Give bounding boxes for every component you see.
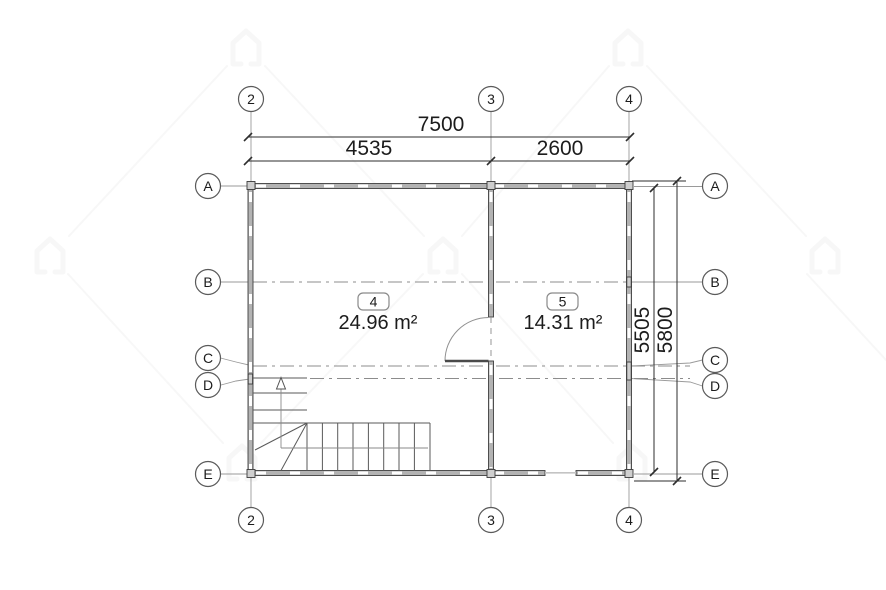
grid-label: 2 bbox=[247, 91, 255, 107]
grid-row-c-leader-right bbox=[631, 360, 703, 366]
grid-bubble-left-d: D bbox=[196, 373, 221, 398]
grid-bubble-right-b: B bbox=[703, 270, 728, 295]
grid-label: C bbox=[710, 352, 720, 368]
post-a2 bbox=[247, 182, 255, 190]
stair-direction-arrow-icon bbox=[277, 378, 286, 390]
house-logo-icon bbox=[233, 31, 259, 64]
room-5-label: 5 14.31 m² bbox=[524, 293, 603, 334]
grid-bubble-bottom-2: 2 bbox=[239, 508, 264, 533]
post-e4 bbox=[625, 470, 633, 478]
post-e3 bbox=[487, 470, 495, 478]
grid-label: 3 bbox=[487, 91, 495, 107]
dim-height-total-text: 5800 bbox=[654, 307, 677, 354]
grid-bubble-bottom-3: 3 bbox=[479, 508, 504, 533]
door-swing-arc bbox=[445, 318, 489, 362]
watermark-diagonal-lines bbox=[68, 66, 886, 443]
grid-row-d-leader-right bbox=[631, 379, 703, 387]
grid-label: C bbox=[203, 350, 213, 366]
house-logo-icon bbox=[812, 239, 838, 272]
grid-bubble-top-3: 3 bbox=[479, 87, 504, 112]
house-logo-icon bbox=[430, 239, 456, 272]
grid-label: 4 bbox=[625, 512, 633, 528]
grid-label: B bbox=[203, 274, 212, 290]
grid-label: A bbox=[710, 178, 720, 194]
watermark-layer bbox=[37, 31, 886, 479]
block-cd4 bbox=[627, 362, 631, 380]
grid-label: 3 bbox=[487, 512, 495, 528]
grid-bubble-right-e: E bbox=[703, 462, 728, 487]
room-area: 14.31 m² bbox=[524, 312, 603, 334]
grid-bubble-right-d: D bbox=[703, 374, 728, 399]
grid-bubble-left-b: B bbox=[196, 270, 221, 295]
grid-bubble-top-4: 4 bbox=[617, 87, 642, 112]
watermark-house-icons bbox=[37, 31, 838, 479]
floor-plan-canvas: 7500 4535 2600 5505 5800 bbox=[0, 0, 886, 590]
dim-width-right-text: 2600 bbox=[537, 137, 584, 160]
dim-total-width-text: 7500 bbox=[418, 113, 465, 136]
dim-height-inner-text: 5505 bbox=[631, 307, 654, 354]
grid-bubble-right-a: A bbox=[703, 174, 728, 199]
wall-interior-lower bbox=[489, 361, 494, 476]
grid-bubble-left-c: C bbox=[196, 346, 221, 371]
house-logo-icon bbox=[37, 239, 63, 272]
grid-bubble-left-e: E bbox=[196, 462, 221, 487]
wall-top bbox=[248, 184, 632, 189]
post-a3 bbox=[487, 182, 495, 190]
door bbox=[445, 318, 489, 362]
block-b4 bbox=[627, 277, 631, 287]
grid-bubble-left-a: A bbox=[196, 174, 221, 199]
grid-bubble-bottom-4: 4 bbox=[617, 508, 642, 533]
post-a4 bbox=[625, 182, 633, 190]
floor-plan-page: 7500 4535 2600 5505 5800 bbox=[0, 0, 886, 590]
room-labels: 4 24.96 m² 5 14.31 m² bbox=[339, 293, 603, 334]
room-area: 24.96 m² bbox=[339, 312, 418, 334]
grid-label: 2 bbox=[247, 512, 255, 528]
grid-label: 4 bbox=[625, 91, 633, 107]
block-d2 bbox=[248, 374, 252, 384]
grid-label: B bbox=[710, 274, 719, 290]
grid-label: D bbox=[203, 377, 213, 393]
room-4-label: 4 24.96 m² bbox=[339, 293, 418, 334]
grid-bubble-right-c: C bbox=[703, 348, 728, 373]
room-number: 5 bbox=[559, 294, 567, 310]
house-logo-icon bbox=[615, 31, 641, 64]
grid-label: D bbox=[710, 378, 720, 394]
dim-width-left-text: 4535 bbox=[346, 137, 393, 160]
grid-label: E bbox=[203, 466, 212, 482]
grid-bubble-top-2: 2 bbox=[239, 87, 264, 112]
post-e2 bbox=[247, 470, 255, 478]
grid-label: E bbox=[710, 466, 719, 482]
room-number: 4 bbox=[370, 294, 378, 310]
grid-label: A bbox=[203, 178, 213, 194]
